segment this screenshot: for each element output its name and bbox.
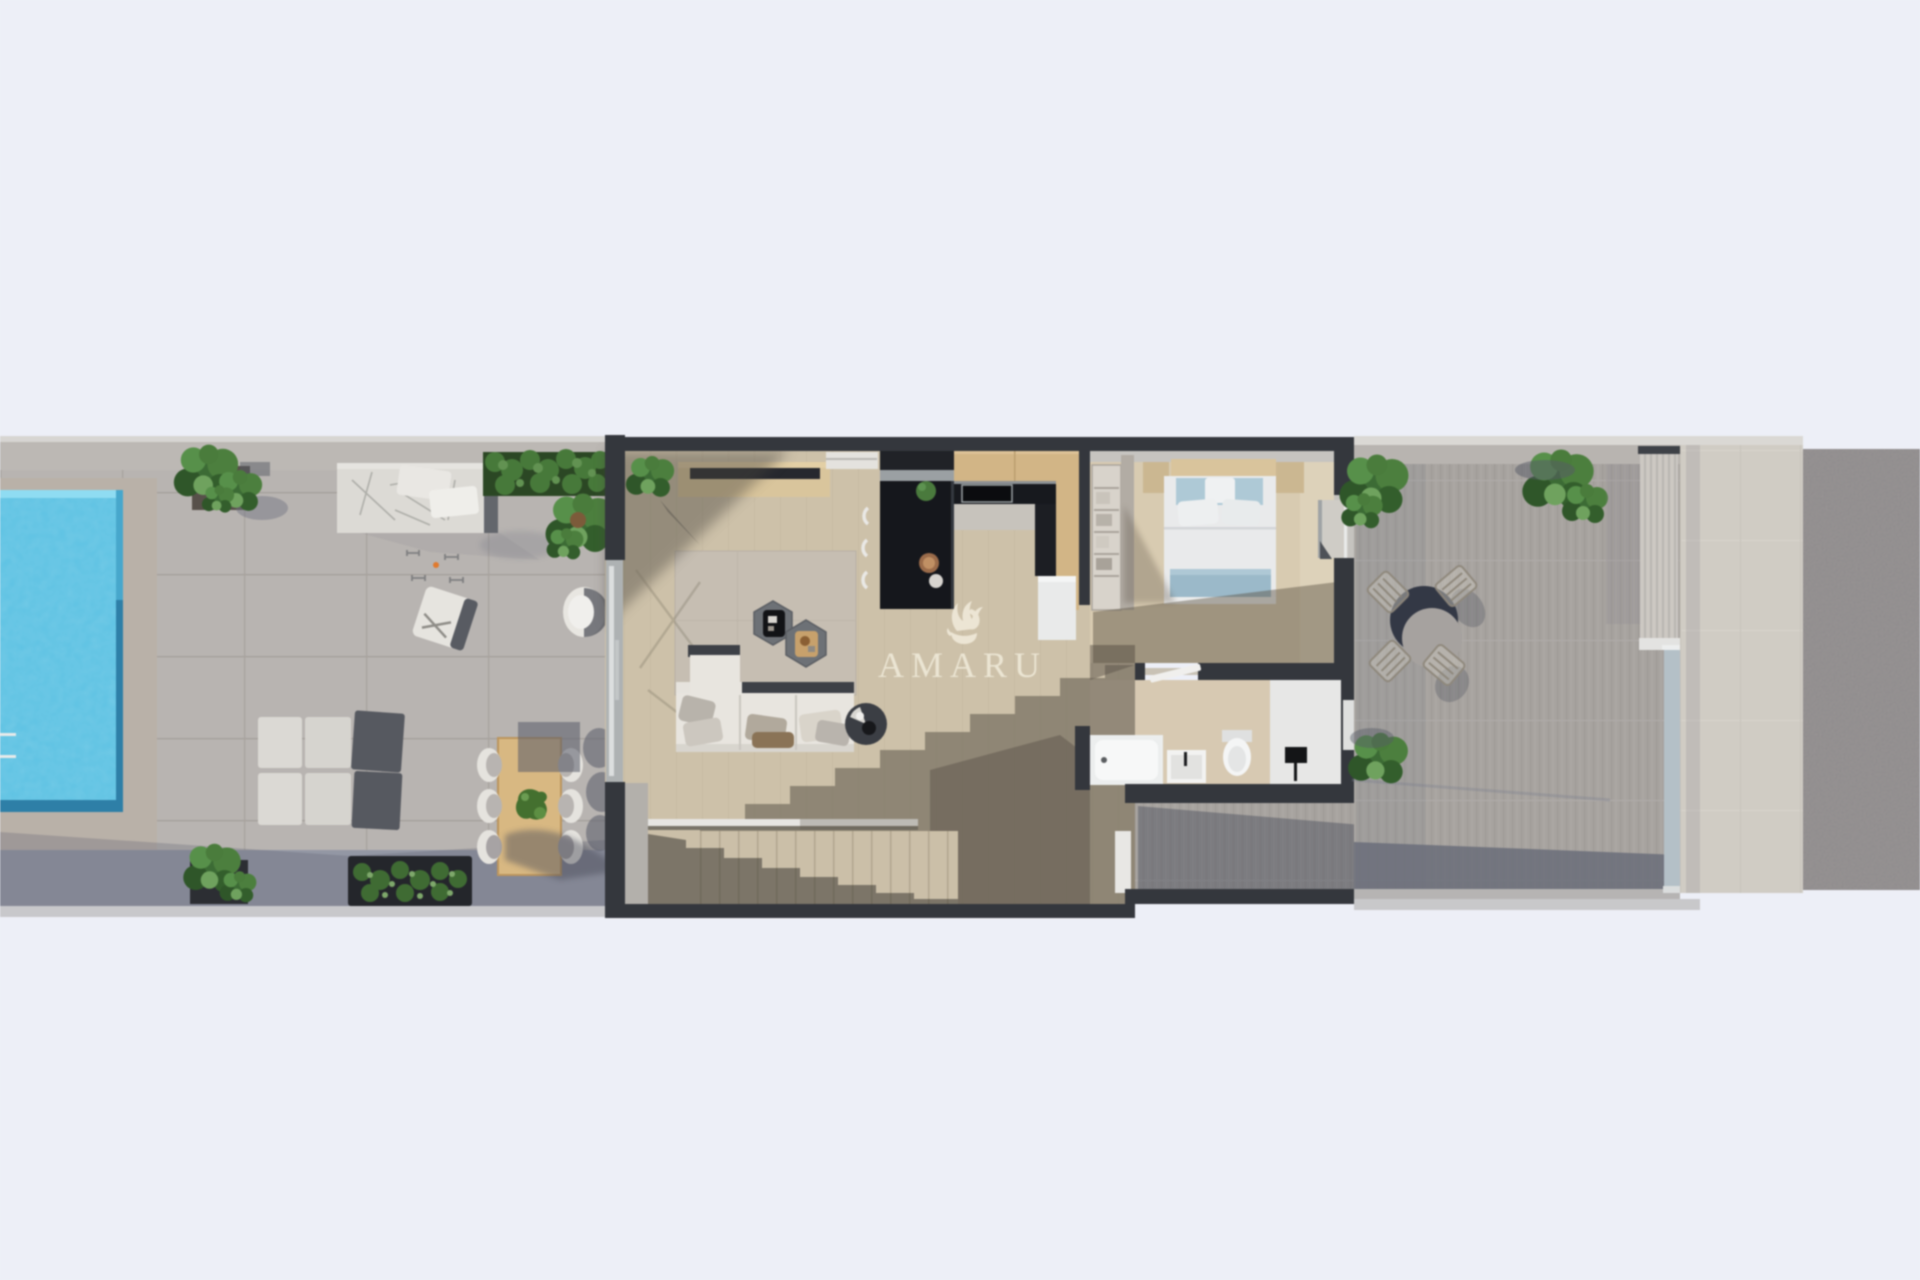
svg-text:AMARU: AMARU <box>878 645 1047 685</box>
